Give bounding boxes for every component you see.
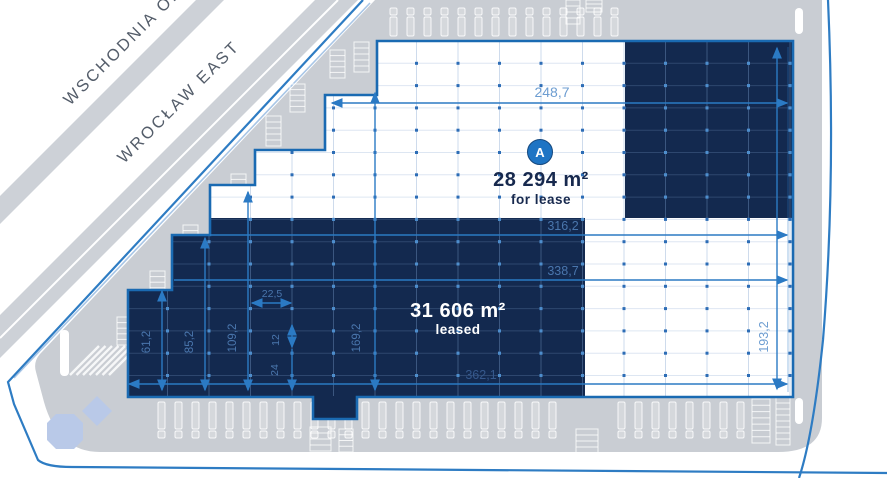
dim-right-height-label: 193,2: [757, 321, 771, 352]
road-island-bottom-right: [795, 398, 803, 424]
dim-bay-h1-label: 12: [270, 334, 282, 346]
dim-bay-width-label: 22,5: [262, 288, 283, 300]
pond-octagon: [47, 414, 83, 449]
unit-a-marker-letter: A: [535, 145, 545, 160]
road-island-left: [60, 330, 69, 376]
leased-block-main: [128, 218, 585, 419]
site-plan: WSCHODNIA OB WROCŁAW EAST: [0, 0, 887, 478]
dim-col3-label: 109,2: [227, 324, 239, 353]
for-lease-area-value: 28 294 m²: [493, 169, 589, 191]
unit-a-marker[interactable]: A: [528, 140, 553, 165]
road-island-top-right: [795, 8, 803, 34]
leased-block-north: [625, 41, 793, 218]
leased-area-value: 31 606 m²: [410, 300, 506, 322]
dim-col2-label: 85,2: [184, 331, 196, 353]
dim-col1-label: 61,2: [141, 331, 153, 353]
highway-lane-inner: [0, 0, 224, 224]
dim-bottom-width-label: 362,1: [465, 368, 496, 382]
leased-status: leased: [435, 322, 480, 337]
dim-top-width-label: 248,7: [534, 84, 569, 100]
dim-mid-width-label: 338,7: [547, 264, 578, 278]
dim-upper-width-label: 316,2: [547, 219, 578, 233]
dim-bay-h2-label: 24: [269, 364, 281, 376]
dim-col4-label: 169,2: [351, 324, 363, 353]
for-lease-status: for lease: [511, 192, 571, 207]
